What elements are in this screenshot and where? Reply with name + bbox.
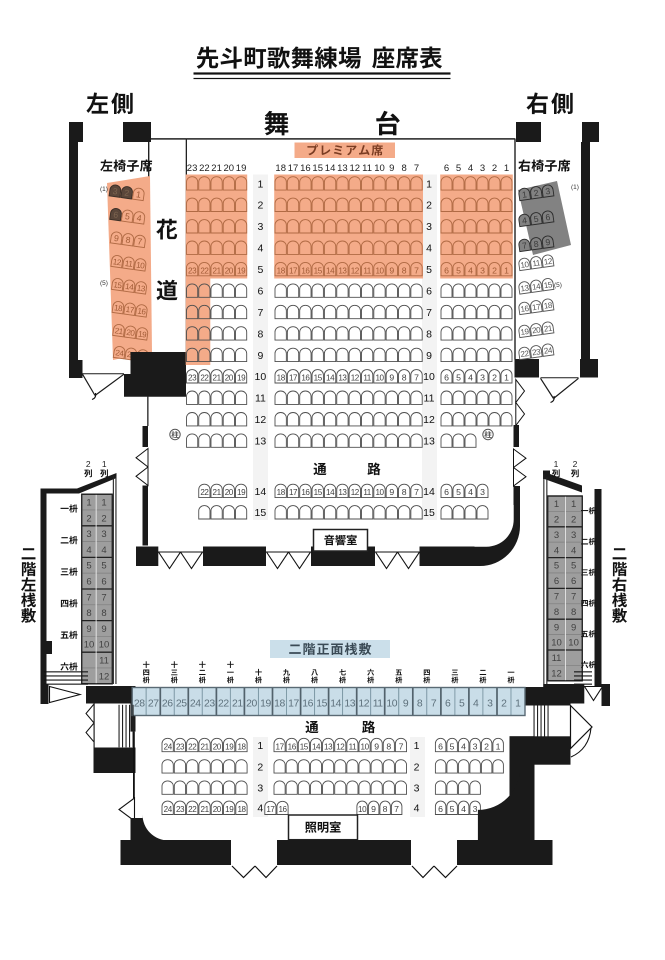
svg-text:8: 8 <box>402 487 407 497</box>
svg-text:1: 1 <box>257 740 263 752</box>
svg-text:6: 6 <box>444 163 449 174</box>
svg-text:8: 8 <box>402 265 407 275</box>
svg-text:20: 20 <box>225 488 234 497</box>
svg-text:1: 1 <box>504 373 509 383</box>
svg-text:5: 5 <box>450 804 455 814</box>
svg-text:8: 8 <box>554 607 559 618</box>
svg-text:1: 1 <box>102 459 107 469</box>
svg-text:1: 1 <box>101 498 106 509</box>
svg-text:15: 15 <box>316 699 327 710</box>
svg-text:27: 27 <box>148 699 159 710</box>
svg-text:7: 7 <box>101 592 106 603</box>
svg-text:3: 3 <box>426 221 432 233</box>
svg-text:12: 12 <box>99 671 110 682</box>
svg-text:10: 10 <box>358 805 367 814</box>
svg-text:7: 7 <box>86 592 91 603</box>
svg-text:11: 11 <box>424 393 435 405</box>
svg-text:6: 6 <box>86 577 91 588</box>
svg-text:8: 8 <box>86 608 91 619</box>
svg-text:4: 4 <box>473 699 479 710</box>
svg-text:23: 23 <box>187 163 198 174</box>
svg-text:3: 3 <box>473 804 478 814</box>
svg-text:3: 3 <box>487 699 493 710</box>
svg-text:5: 5 <box>101 561 106 572</box>
svg-text:7: 7 <box>399 741 404 751</box>
svg-text:13: 13 <box>255 436 267 448</box>
svg-text:24: 24 <box>164 742 173 751</box>
svg-text:4: 4 <box>554 545 559 556</box>
svg-text:8: 8 <box>257 328 263 340</box>
svg-text:13: 13 <box>338 374 347 383</box>
svg-text:17: 17 <box>288 699 299 710</box>
svg-text:(1): (1) <box>571 184 579 191</box>
svg-text:9: 9 <box>101 624 106 635</box>
svg-text:16: 16 <box>300 163 311 174</box>
svg-text:12: 12 <box>423 414 435 426</box>
svg-text:1: 1 <box>554 459 559 469</box>
svg-text:7: 7 <box>414 163 419 174</box>
svg-text:8: 8 <box>571 607 576 618</box>
svg-text:10: 10 <box>568 638 579 649</box>
svg-text:3: 3 <box>86 529 91 540</box>
svg-text:22: 22 <box>218 699 229 710</box>
svg-text:2: 2 <box>414 761 420 773</box>
svg-text:11: 11 <box>363 488 371 497</box>
svg-text:10: 10 <box>84 640 95 651</box>
svg-text:7: 7 <box>414 373 419 383</box>
svg-text:17: 17 <box>289 374 298 383</box>
svg-text:19: 19 <box>236 163 247 174</box>
svg-text:(5): (5) <box>100 280 108 287</box>
svg-text:3: 3 <box>257 221 263 233</box>
svg-text:11: 11 <box>552 653 562 664</box>
svg-text:7: 7 <box>414 487 419 497</box>
svg-text:5: 5 <box>456 373 461 383</box>
svg-text:5: 5 <box>257 264 263 276</box>
svg-text:18: 18 <box>277 266 286 275</box>
svg-text:14: 14 <box>326 488 335 497</box>
svg-text:25: 25 <box>176 699 187 710</box>
svg-text:24: 24 <box>190 699 201 710</box>
svg-text:13: 13 <box>324 742 333 751</box>
svg-text:8: 8 <box>402 163 407 174</box>
svg-text:9: 9 <box>554 622 559 633</box>
svg-text:17: 17 <box>276 742 285 751</box>
svg-text:1: 1 <box>504 163 509 174</box>
svg-text:21: 21 <box>232 699 243 710</box>
svg-text:2: 2 <box>573 459 578 469</box>
svg-text:2: 2 <box>492 265 497 275</box>
svg-text:18: 18 <box>277 488 286 497</box>
svg-text:2: 2 <box>484 741 489 751</box>
svg-text:12: 12 <box>255 414 267 426</box>
svg-text:16: 16 <box>301 374 310 383</box>
svg-text:10: 10 <box>99 640 110 651</box>
svg-text:18: 18 <box>237 742 246 751</box>
svg-text:19: 19 <box>237 488 246 497</box>
svg-text:11: 11 <box>349 742 357 751</box>
svg-text:3: 3 <box>480 487 485 497</box>
svg-text:20: 20 <box>225 266 234 275</box>
svg-text:9: 9 <box>426 350 432 362</box>
svg-text:16: 16 <box>278 805 287 814</box>
svg-text:15: 15 <box>255 507 267 519</box>
svg-text:10: 10 <box>361 742 370 751</box>
svg-text:10: 10 <box>423 371 435 383</box>
svg-text:5: 5 <box>571 561 576 572</box>
svg-text:11: 11 <box>362 163 372 174</box>
svg-text:10: 10 <box>375 374 384 383</box>
svg-text:13: 13 <box>344 699 355 710</box>
svg-text:10: 10 <box>375 488 384 497</box>
svg-text:19: 19 <box>237 266 246 275</box>
svg-text:15: 15 <box>312 163 323 174</box>
svg-text:14: 14 <box>330 699 341 710</box>
svg-text:6: 6 <box>444 373 449 383</box>
svg-text:8: 8 <box>417 699 423 710</box>
svg-text:2: 2 <box>492 163 497 174</box>
svg-text:4: 4 <box>414 803 420 815</box>
svg-text:21: 21 <box>201 742 210 751</box>
svg-text:10: 10 <box>386 699 397 710</box>
svg-text:21: 21 <box>213 266 222 275</box>
svg-text:4: 4 <box>571 545 576 556</box>
svg-text:8: 8 <box>426 328 432 340</box>
svg-text:9: 9 <box>371 804 376 814</box>
svg-text:17: 17 <box>289 488 298 497</box>
svg-text:3: 3 <box>480 373 485 383</box>
svg-text:3: 3 <box>480 265 485 275</box>
svg-text:7: 7 <box>394 804 399 814</box>
svg-text:23: 23 <box>188 374 197 383</box>
svg-text:15: 15 <box>300 742 309 751</box>
svg-text:1: 1 <box>257 178 263 190</box>
svg-text:4: 4 <box>101 545 106 556</box>
svg-text:9: 9 <box>389 373 394 383</box>
svg-text:19: 19 <box>237 374 246 383</box>
svg-text:10: 10 <box>551 638 562 649</box>
svg-text:19: 19 <box>225 805 234 814</box>
svg-text:7: 7 <box>257 307 263 319</box>
svg-text:20: 20 <box>246 699 257 710</box>
svg-text:17: 17 <box>288 163 299 174</box>
svg-text:18: 18 <box>277 374 286 383</box>
svg-text:23: 23 <box>176 742 185 751</box>
svg-text:11: 11 <box>373 699 384 710</box>
svg-text:18: 18 <box>275 163 286 174</box>
svg-text:17: 17 <box>266 805 275 814</box>
svg-text:22: 22 <box>200 488 209 497</box>
svg-text:1: 1 <box>554 499 559 510</box>
svg-text:2: 2 <box>257 200 263 212</box>
svg-text:6: 6 <box>438 741 443 751</box>
svg-text:15: 15 <box>314 266 323 275</box>
svg-text:5: 5 <box>426 264 432 276</box>
svg-text:16: 16 <box>302 699 313 710</box>
svg-text:20: 20 <box>213 742 222 751</box>
svg-text:14: 14 <box>423 486 435 498</box>
svg-text:22: 22 <box>188 742 197 751</box>
svg-text:22: 22 <box>188 805 197 814</box>
svg-text:22: 22 <box>200 266 209 275</box>
svg-text:4: 4 <box>461 804 466 814</box>
svg-text:13: 13 <box>423 436 435 448</box>
svg-text:2: 2 <box>501 699 507 710</box>
svg-text:9: 9 <box>389 265 394 275</box>
svg-text:2: 2 <box>86 459 91 469</box>
svg-text:12: 12 <box>358 699 369 710</box>
svg-text:17: 17 <box>289 266 298 275</box>
svg-text:8: 8 <box>386 741 391 751</box>
svg-text:7: 7 <box>571 592 576 603</box>
svg-text:20: 20 <box>224 163 235 174</box>
svg-text:2: 2 <box>554 515 559 526</box>
svg-text:4: 4 <box>257 803 263 815</box>
svg-text:6: 6 <box>571 576 576 587</box>
svg-text:9: 9 <box>374 741 379 751</box>
svg-text:14: 14 <box>325 163 336 174</box>
svg-text:6: 6 <box>101 577 106 588</box>
svg-text:12: 12 <box>351 488 360 497</box>
svg-text:16: 16 <box>301 488 310 497</box>
svg-text:26: 26 <box>162 699 173 710</box>
svg-text:15: 15 <box>423 507 435 519</box>
svg-text:16: 16 <box>288 742 297 751</box>
svg-text:3: 3 <box>480 163 485 174</box>
svg-text:5: 5 <box>450 741 455 751</box>
svg-text:3: 3 <box>414 783 420 795</box>
svg-text:12: 12 <box>351 266 360 275</box>
svg-text:19: 19 <box>225 742 234 751</box>
svg-text:6: 6 <box>257 286 263 298</box>
svg-text:3: 3 <box>257 783 263 795</box>
svg-text:5: 5 <box>456 487 461 497</box>
svg-text:4: 4 <box>468 487 473 497</box>
svg-text:4: 4 <box>461 741 466 751</box>
svg-text:7: 7 <box>554 592 559 603</box>
svg-text:23: 23 <box>204 699 215 710</box>
svg-text:20: 20 <box>225 374 234 383</box>
svg-text:7: 7 <box>431 699 437 710</box>
svg-text:1: 1 <box>414 740 420 752</box>
svg-text:13: 13 <box>338 488 347 497</box>
svg-text:19: 19 <box>260 699 271 710</box>
svg-text:18: 18 <box>274 699 285 710</box>
svg-text:9: 9 <box>403 699 409 710</box>
svg-text:28: 28 <box>134 699 145 710</box>
svg-text:1: 1 <box>86 498 91 509</box>
svg-text:8: 8 <box>101 608 106 619</box>
svg-text:9: 9 <box>571 622 576 633</box>
svg-text:6: 6 <box>438 804 443 814</box>
svg-text:1: 1 <box>496 741 501 751</box>
svg-text:15: 15 <box>314 488 323 497</box>
svg-text:7: 7 <box>414 265 419 275</box>
svg-text:14: 14 <box>255 486 267 498</box>
svg-text:14: 14 <box>326 374 335 383</box>
svg-text:14: 14 <box>326 266 335 275</box>
svg-text:1: 1 <box>504 265 509 275</box>
svg-text:11: 11 <box>99 656 109 667</box>
svg-text:22: 22 <box>200 374 209 383</box>
svg-text:8: 8 <box>383 804 388 814</box>
svg-text:23: 23 <box>188 266 197 275</box>
svg-text:5: 5 <box>554 561 559 572</box>
svg-text:11: 11 <box>363 374 371 383</box>
svg-text:(1): (1) <box>100 186 108 193</box>
svg-text:18: 18 <box>237 805 246 814</box>
svg-text:9: 9 <box>257 350 263 362</box>
svg-text:1: 1 <box>426 178 432 190</box>
svg-text:5: 5 <box>459 699 465 710</box>
svg-text:21: 21 <box>201 805 210 814</box>
svg-text:2: 2 <box>426 200 432 212</box>
svg-text:2: 2 <box>86 513 91 524</box>
svg-text:6: 6 <box>444 265 449 275</box>
svg-text:11: 11 <box>363 266 371 275</box>
svg-text:5: 5 <box>456 163 461 174</box>
svg-text:12: 12 <box>351 374 360 383</box>
svg-text:21: 21 <box>213 374 222 383</box>
svg-text:6: 6 <box>426 286 432 298</box>
svg-text:3: 3 <box>554 530 559 541</box>
svg-text:6: 6 <box>444 487 449 497</box>
svg-text:16: 16 <box>301 266 310 275</box>
svg-text:23: 23 <box>176 805 185 814</box>
svg-text:5: 5 <box>456 265 461 275</box>
svg-text:4: 4 <box>257 243 263 255</box>
svg-text:5: 5 <box>86 561 91 572</box>
svg-text:6: 6 <box>554 576 559 587</box>
svg-text:14: 14 <box>312 742 321 751</box>
svg-text:10: 10 <box>374 163 385 174</box>
svg-text:2: 2 <box>101 513 106 524</box>
svg-text:13: 13 <box>338 266 347 275</box>
svg-text:12: 12 <box>336 742 345 751</box>
svg-text:12: 12 <box>551 669 562 680</box>
svg-text:12: 12 <box>350 163 361 174</box>
svg-text:22: 22 <box>199 163 210 174</box>
svg-text:11: 11 <box>255 393 266 405</box>
svg-text:3: 3 <box>473 741 478 751</box>
svg-text:21: 21 <box>211 163 222 174</box>
svg-text:10: 10 <box>375 266 384 275</box>
svg-text:8: 8 <box>402 373 407 383</box>
svg-text:24: 24 <box>164 805 173 814</box>
svg-text:4: 4 <box>426 243 432 255</box>
svg-text:20: 20 <box>213 805 222 814</box>
svg-text:9: 9 <box>86 624 91 635</box>
svg-text:10: 10 <box>255 371 267 383</box>
svg-text:4: 4 <box>86 545 91 556</box>
svg-text:4: 4 <box>468 163 473 174</box>
svg-text:9: 9 <box>389 163 394 174</box>
svg-text:21: 21 <box>213 488 222 497</box>
svg-text:(5): (5) <box>554 282 562 289</box>
svg-text:2: 2 <box>257 761 263 773</box>
svg-text:3: 3 <box>101 529 106 540</box>
svg-text:7: 7 <box>426 307 432 319</box>
svg-text:3: 3 <box>571 530 576 541</box>
svg-text:4: 4 <box>468 265 473 275</box>
svg-text:13: 13 <box>337 163 348 174</box>
svg-text:6: 6 <box>445 699 451 710</box>
svg-text:1: 1 <box>571 499 576 510</box>
svg-text:4: 4 <box>468 373 473 383</box>
svg-text:2: 2 <box>492 373 497 383</box>
svg-text:1: 1 <box>515 699 521 710</box>
svg-text:2: 2 <box>571 515 576 526</box>
svg-text:15: 15 <box>314 374 323 383</box>
svg-text:9: 9 <box>389 487 394 497</box>
